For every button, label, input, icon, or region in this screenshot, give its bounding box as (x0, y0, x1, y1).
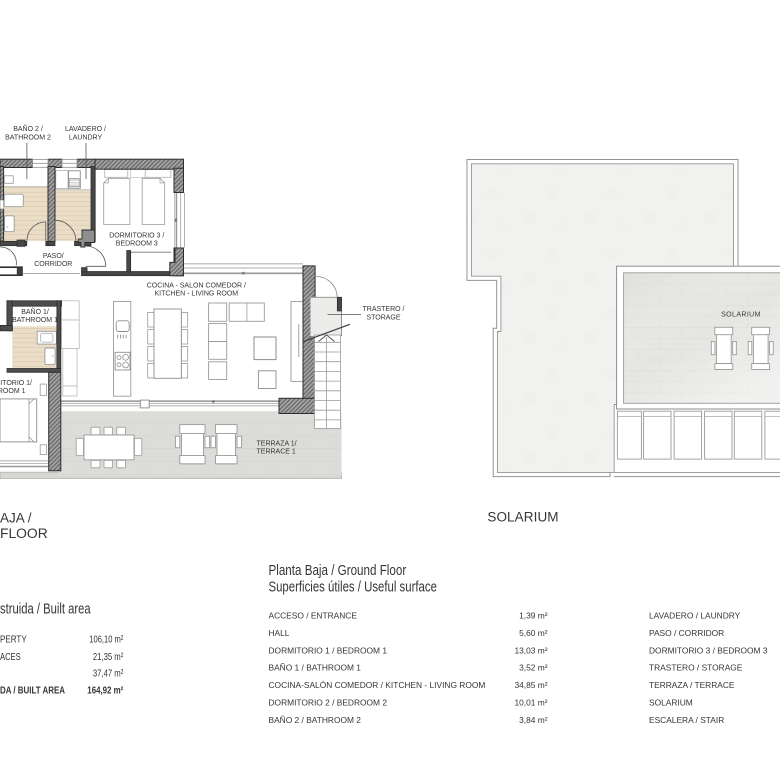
svg-text:ESCALERA / STAIR: ESCALERA / STAIR (649, 715, 724, 725)
svg-text:DORMITORIO 1 / BEDROOM 1: DORMITORIO 1 / BEDROOM 1 (269, 645, 388, 655)
svg-text:13,03 m²: 13,03 m² (514, 645, 547, 655)
svg-text:BEDROOM 1: BEDROOM 1 (0, 388, 26, 395)
svg-text:KITCHEN - LIVING ROOM: KITCHEN - LIVING ROOM (154, 291, 238, 298)
svg-text:BATHROOM 1: BATHROOM 1 (12, 317, 58, 324)
svg-text:BAÑO 1/: BAÑO 1/ (21, 307, 49, 316)
svg-text:37,47 m²: 37,47 m² (93, 669, 124, 680)
svg-text:21,35 m²: 21,35 m² (93, 652, 124, 663)
svg-text:TERRAZA / TERRACE: TERRAZA / TERRACE (649, 680, 735, 690)
svg-text:COCINA - SALON COMEDOR /: COCINA - SALON COMEDOR / (147, 283, 246, 290)
svg-text:TRASTERO /: TRASTERO / (362, 306, 404, 313)
svg-text:DORMITORIO 3 /: DORMITORIO 3 / (109, 232, 164, 239)
svg-text:PASO / CORRIDOR: PASO / CORRIDOR (649, 628, 724, 638)
svg-text:34,85 m²: 34,85 m² (514, 680, 547, 690)
svg-text:Planta Baja / Ground Floor: Planta Baja / Ground Floor (269, 562, 407, 579)
svg-text:LAVADERO /: LAVADERO / (65, 126, 106, 133)
svg-text:LAVADERO / LAUNDRY: LAVADERO / LAUNDRY (649, 611, 741, 621)
svg-text:PASO/: PASO/ (43, 253, 64, 260)
svg-text:PERTY: PERTY (0, 634, 27, 645)
svg-text:BAÑO 2 / BATHROOM 2: BAÑO 2 / BATHROOM 2 (269, 715, 362, 725)
svg-text:DA / BUILT AREA: DA / BUILT AREA (0, 685, 65, 696)
svg-text:HALL: HALL (269, 628, 290, 638)
svg-text:BATHROOM 2: BATHROOM 2 (5, 135, 51, 142)
svg-text:ACCESO / ENTRANCE: ACCESO / ENTRANCE (269, 611, 358, 621)
svg-text:DORMITORIO 3 / BEDROOM 3: DORMITORIO 3 / BEDROOM 3 (649, 645, 768, 655)
svg-text:LAUNDRY: LAUNDRY (69, 135, 103, 142)
svg-text:DORMITORIO 2 / BEDROOM 2: DORMITORIO 2 / BEDROOM 2 (269, 698, 388, 708)
svg-text:STORAGE: STORAGE (366, 314, 400, 321)
svg-text:struida / Built area: struida / Built area (0, 601, 91, 618)
svg-text:TERRACE 1: TERRACE 1 (257, 448, 296, 455)
svg-text:TERRAZA 1/: TERRAZA 1/ (257, 440, 297, 447)
svg-text:ACES: ACES (0, 652, 21, 663)
svg-text:106,10 m²: 106,10 m² (89, 634, 123, 645)
svg-text:BEDROOM 3: BEDROOM 3 (116, 240, 158, 247)
svg-text:1,39 m²: 1,39 m² (519, 611, 548, 621)
svg-text:3,84 m²: 3,84 m² (519, 715, 548, 725)
svg-text:COCINA-SALÓN COMEDOR / KITCHEN: COCINA-SALÓN COMEDOR / KITCHEN - LIVING … (269, 680, 486, 690)
svg-text:BAÑO 2 /: BAÑO 2 / (13, 124, 43, 133)
svg-text:CORRIDOR: CORRIDOR (34, 261, 72, 268)
svg-text:SOLARIUM: SOLARIUM (721, 312, 761, 319)
svg-text:BAÑO 1 / BATHROOM 1: BAÑO 1 / BATHROOM 1 (269, 663, 362, 673)
svg-text:DORMITORIO 1/: DORMITORIO 1/ (0, 380, 32, 387)
svg-text:Superficies útiles / Useful su: Superficies útiles / Useful surface (269, 578, 437, 595)
svg-text:3,52 m²: 3,52 m² (519, 663, 548, 673)
svg-text:TRASTERO / STORAGE: TRASTERO / STORAGE (649, 663, 743, 673)
svg-text:10,01 m²: 10,01 m² (514, 698, 547, 708)
svg-text:FLOOR: FLOOR (0, 526, 48, 541)
svg-text:SOLARIUM: SOLARIUM (649, 698, 693, 708)
svg-text:AJA /: AJA / (0, 511, 32, 526)
svg-text:164,92 m²: 164,92 m² (87, 685, 123, 696)
svg-text:SOLARIUM: SOLARIUM (487, 510, 558, 525)
svg-text:5,60 m²: 5,60 m² (519, 628, 548, 638)
